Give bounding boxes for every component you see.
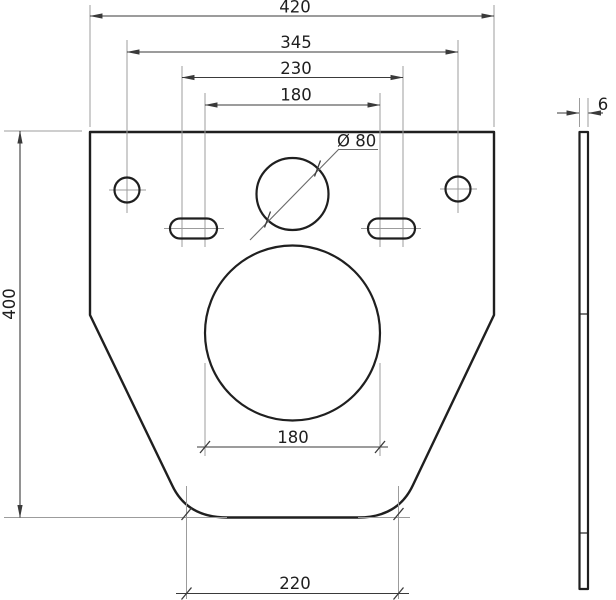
dim-label: 6 [598,95,609,114]
dim-thickness: 6 [557,95,608,127]
drawing-canvas: 420 345 230 180 Ø 80 180 220 400 [0,0,616,600]
dim-overall-width: 420 [90,0,494,17]
dim-bolt-spacing-narrow: 180 [205,86,380,106]
dim-label: 180 [277,428,309,447]
dim-label: 180 [280,86,312,105]
dim-overall-height: 400 [0,131,20,518]
dim-label: 400 [0,288,19,320]
dim-label: 220 [279,574,311,593]
plate-side-profile [580,132,589,589]
dim-label: Ø 80 [337,132,376,151]
dim-label: 345 [280,33,312,52]
side-view: 6 [557,95,608,589]
front-view [4,5,494,599]
dim-bolt-spacing-wide: 230 [182,59,403,78]
plate-outline [90,132,494,518]
dim-hole-spacing: 345 [127,33,458,52]
dim-label: 230 [280,59,312,78]
dim-bottom-width: 220 [176,508,409,600]
dim-label: 420 [279,0,311,17]
